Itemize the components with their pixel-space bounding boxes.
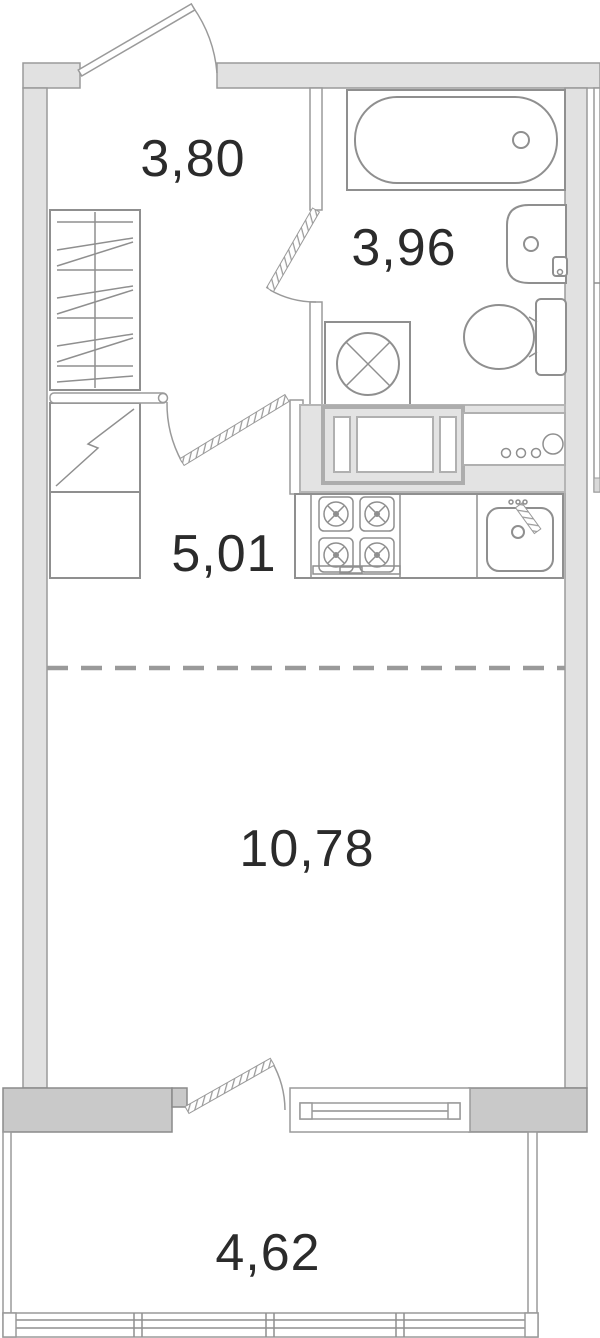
balcony-door-leaf: [185, 1058, 274, 1113]
adjacent-unit-wall: [594, 88, 600, 492]
bathroom-door: [267, 208, 320, 302]
top-wall-left-segment: [23, 63, 80, 88]
floor-plan-svg: 3,80 3,96 5,01 10,78 4,62: [0, 0, 600, 1338]
entrance-door-leaf: [78, 4, 195, 76]
bottom-wall-right-segment: [469, 1088, 587, 1132]
interior-door: [167, 395, 289, 466]
top-wall-right-segment: [217, 63, 600, 88]
bottom-wall-door-jamb: [172, 1088, 187, 1107]
balcony-area-label: 4,62: [215, 1224, 320, 1282]
utility-shaft-block: [300, 405, 565, 492]
bathroom-counter: [463, 413, 565, 465]
bathroom-area-label: 3,96: [351, 219, 456, 277]
kitchen-counter: [295, 494, 563, 578]
left-wall: [23, 88, 47, 1088]
bathtub: [347, 90, 565, 190]
floor-plan: 3,80 3,96 5,01 10,78 4,62: [0, 0, 600, 1338]
bottom-wall-left-segment: [3, 1088, 172, 1132]
right-wall: [565, 88, 587, 1088]
washbasin: [507, 205, 567, 283]
bathroom-wall: [310, 88, 322, 405]
balcony-door: [185, 1058, 285, 1113]
hall-cabinet: [50, 403, 140, 578]
washing-machine: [325, 322, 410, 407]
bathroom-door-leaf: [267, 208, 320, 292]
balcony-glazing: [3, 1313, 538, 1337]
living-room-area-label: 10,78: [239, 820, 374, 878]
window: [290, 1088, 470, 1132]
hallway-area-label: 3,80: [140, 130, 245, 188]
interior-door-leaf: [180, 395, 289, 466]
kitchen-sink: [487, 500, 553, 571]
kitchen-area-label: 5,01: [171, 525, 276, 583]
entrance-door: [78, 4, 217, 76]
hall-partition: [50, 393, 168, 403]
wardrobe: [50, 210, 140, 390]
toilet: [464, 299, 566, 375]
